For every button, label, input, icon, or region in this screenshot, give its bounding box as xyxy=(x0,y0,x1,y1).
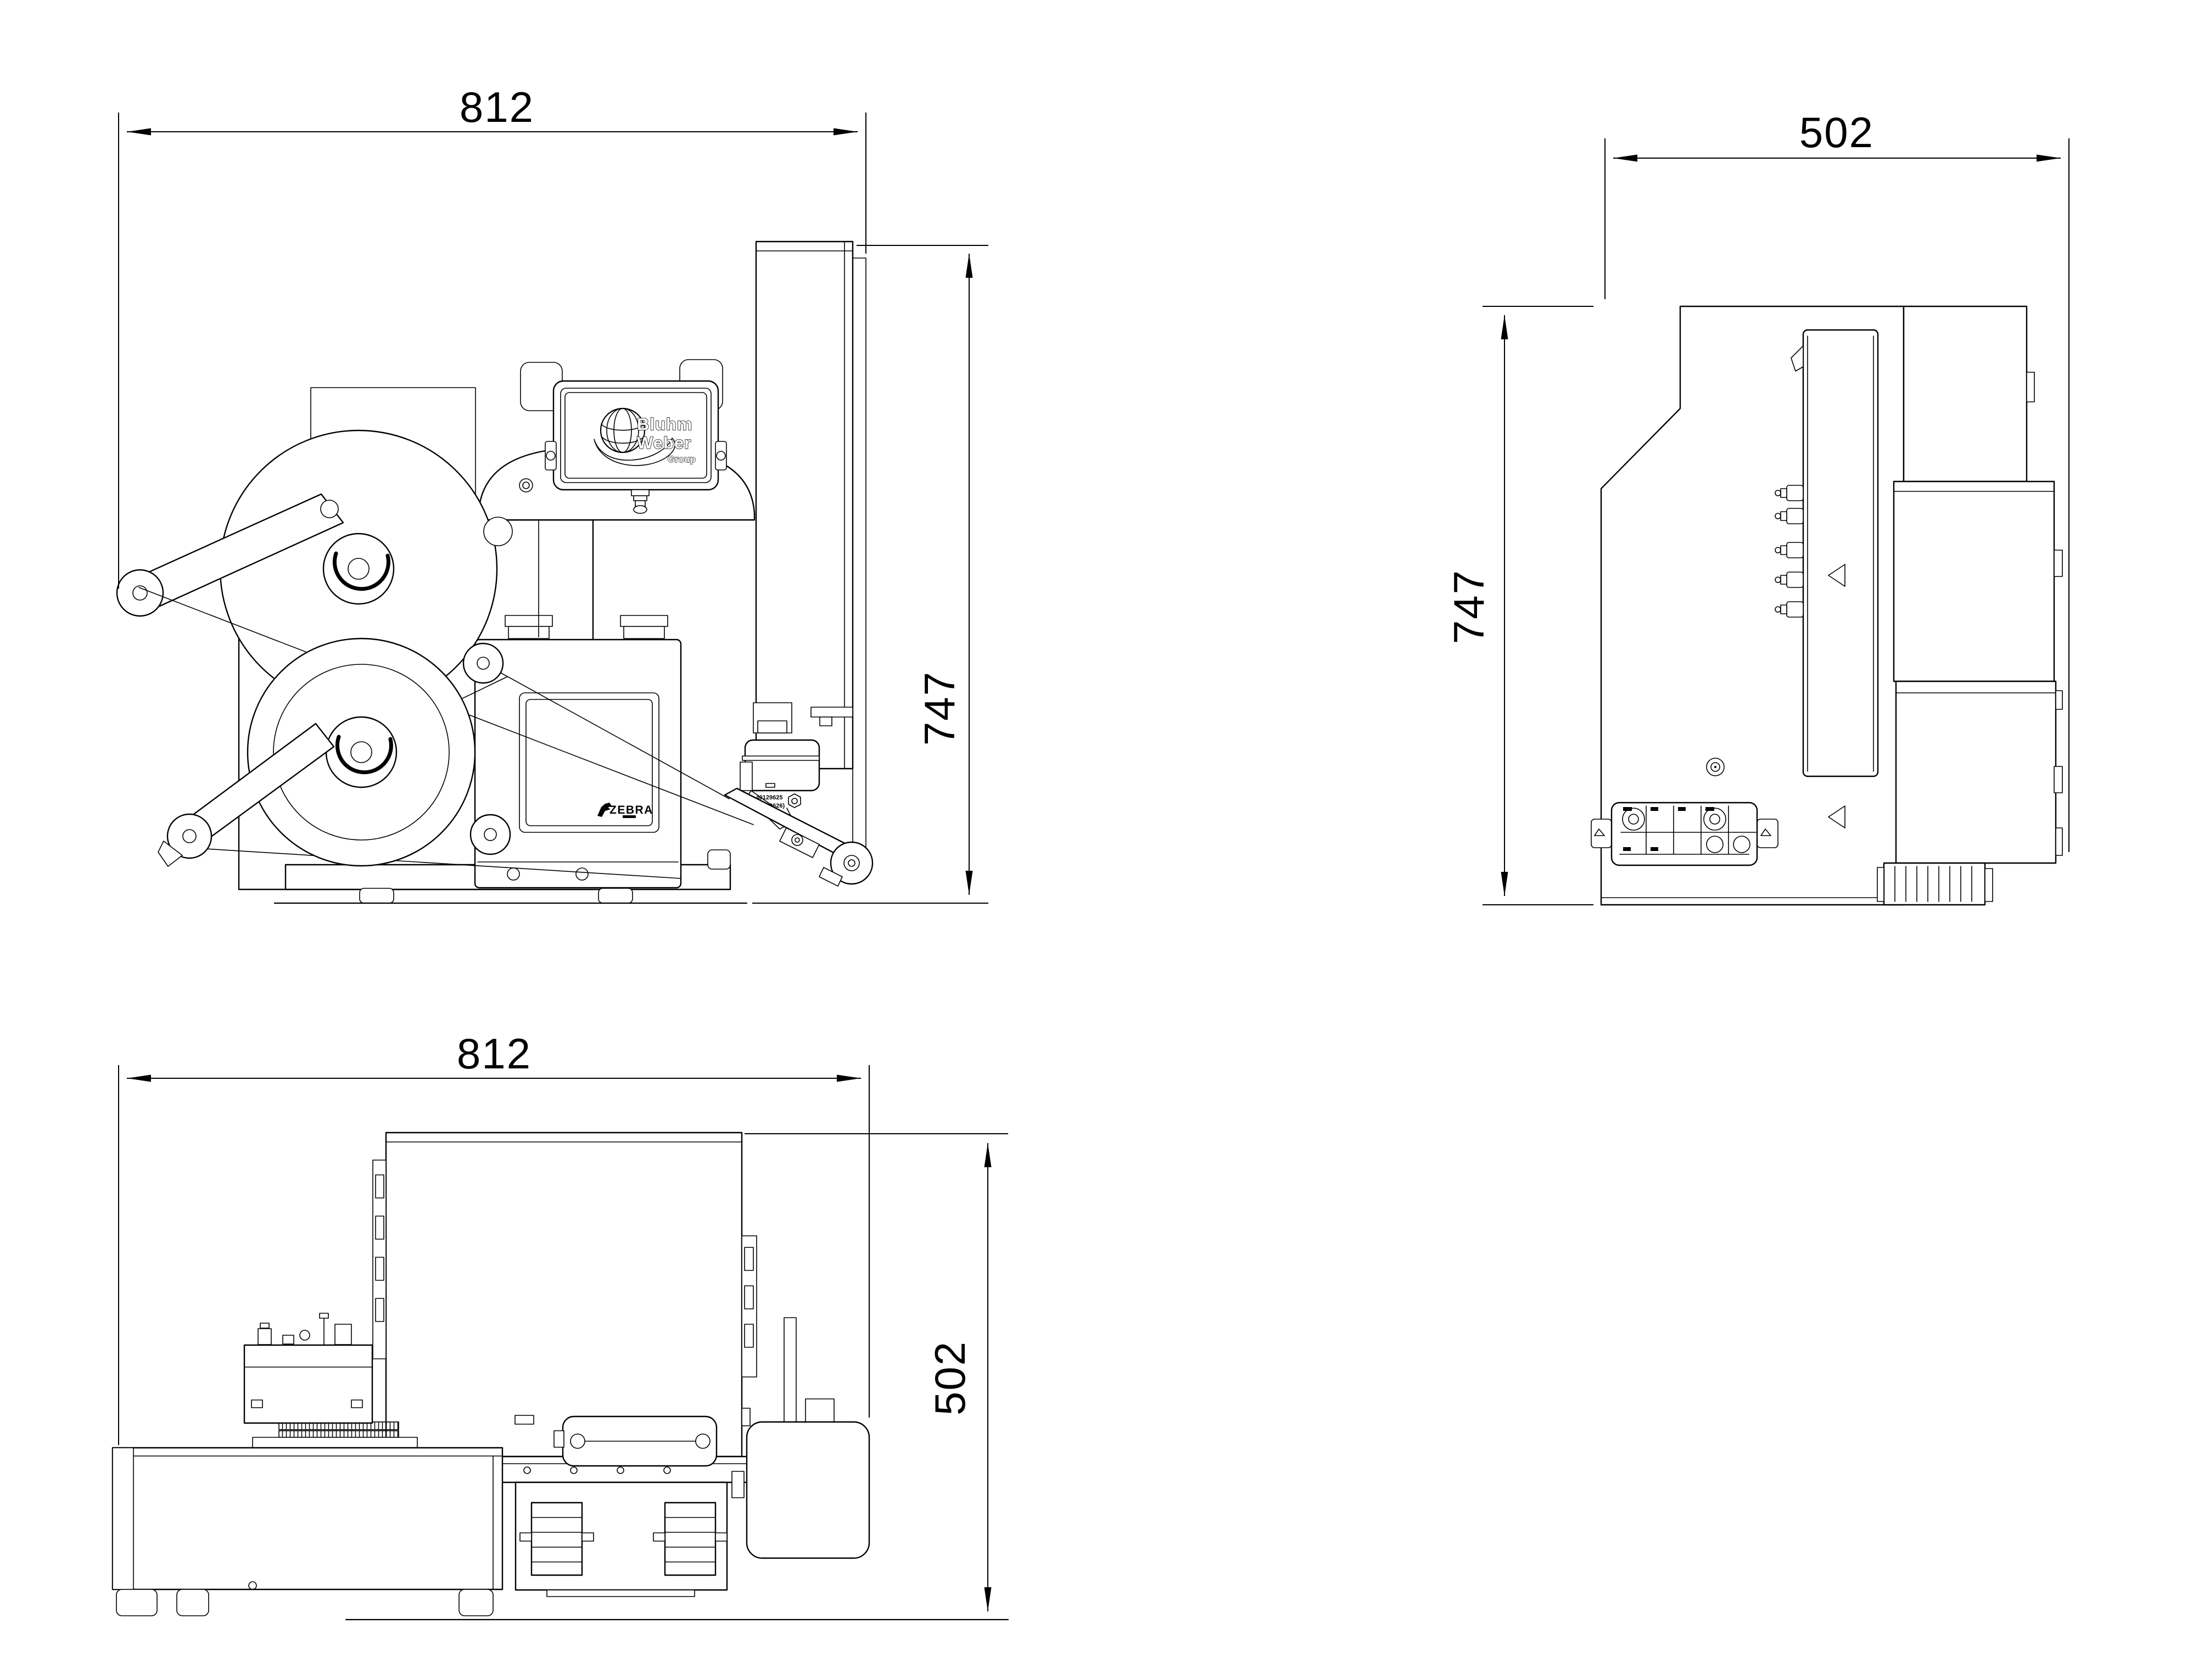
side-tab xyxy=(2054,550,2062,576)
dim-side-width: 502 xyxy=(1799,108,1874,156)
dim-side-height: 747 xyxy=(1445,569,1493,644)
connector-pin xyxy=(1781,489,1787,497)
block-side-tab xyxy=(1757,819,1778,848)
flat-box xyxy=(113,1448,502,1589)
dim-top-width: 812 xyxy=(457,1029,532,1078)
conveyor-base xyxy=(113,1448,502,1616)
fitting-cap xyxy=(320,1313,328,1318)
upper-arm-pivot xyxy=(321,500,338,518)
round-connector-pin xyxy=(1714,766,1716,768)
side-fitting-stub xyxy=(820,717,832,726)
fitting xyxy=(283,1335,294,1344)
guide-roller-hole xyxy=(477,657,489,669)
connector-pin xyxy=(1781,605,1787,614)
side-tab xyxy=(2056,828,2062,855)
side-column-stack xyxy=(1894,306,2062,863)
hmi-frame xyxy=(553,381,718,490)
pneumatic-port[interactable] xyxy=(1733,836,1750,853)
pneumatic-port[interactable] xyxy=(1623,808,1645,830)
applicator-strip xyxy=(784,1318,796,1423)
pneumatic-block xyxy=(1591,803,1778,865)
rewind-gear-pedestal xyxy=(253,1422,417,1448)
valve-detail xyxy=(251,1400,262,1408)
fitting xyxy=(335,1324,351,1345)
ribbed-pad xyxy=(520,1503,594,1575)
hmi-side-bolt-head xyxy=(717,451,725,460)
technical-drawing: 40129625 (40129626) xyxy=(0,0,2187,1680)
ribbed-pad xyxy=(653,1503,727,1575)
pad-tab xyxy=(520,1533,532,1541)
applicator-block xyxy=(732,1471,744,1498)
pneumatic-port[interactable] xyxy=(1704,808,1726,830)
rewind-shaft-hole xyxy=(351,742,372,763)
mid-box xyxy=(1894,481,2054,681)
hmi-side-bolt-head xyxy=(546,451,555,460)
dancer-roller-hub xyxy=(844,855,859,871)
peel-housing xyxy=(745,740,819,791)
dim-front-width: 812 xyxy=(460,83,534,131)
fitting-cap xyxy=(260,1323,269,1328)
side-fitting xyxy=(811,707,853,717)
valve-block-lower xyxy=(758,721,787,733)
connector[interactable] xyxy=(1787,485,1803,501)
unwind-shaft-hole xyxy=(348,558,369,579)
hmi-cable-gland xyxy=(631,490,649,496)
tab xyxy=(745,1286,753,1309)
connector[interactable] xyxy=(1787,572,1803,587)
machine-foot xyxy=(116,1589,157,1616)
peel-tab xyxy=(766,783,775,787)
connector[interactable] xyxy=(1787,508,1803,524)
guide-roller xyxy=(484,517,512,546)
applicator-pad xyxy=(747,1422,869,1558)
plate-bolt xyxy=(519,479,533,492)
pedestal-plate xyxy=(253,1437,417,1448)
connector-pin xyxy=(1781,512,1787,520)
machine-foot xyxy=(599,888,633,903)
block-side-tab xyxy=(1591,819,1612,848)
logo-line2: Weber xyxy=(637,433,691,452)
column-backing-plate xyxy=(853,258,866,848)
grid-end-cap xyxy=(1985,869,1993,901)
valve-unit-body xyxy=(244,1345,372,1423)
pneumatic-port[interactable] xyxy=(1707,836,1723,853)
drawing-sheet: 40129625 (40129626) xyxy=(0,0,2187,1680)
side-tab xyxy=(2027,372,2034,402)
hmi-cable-gland-nut xyxy=(634,506,647,513)
tab xyxy=(376,1175,384,1198)
machine-foot xyxy=(459,1589,493,1616)
connector[interactable] xyxy=(1787,542,1803,558)
tab xyxy=(376,1298,384,1321)
side-tab xyxy=(2056,691,2062,709)
plate-body xyxy=(1803,330,1878,776)
peel-side-block xyxy=(740,762,752,791)
housing-top xyxy=(386,1133,742,1457)
fitting-round xyxy=(300,1330,310,1340)
valve-unit xyxy=(244,1313,372,1423)
engine-screw xyxy=(507,868,519,880)
machine-foot xyxy=(360,888,394,903)
vacuum-grid xyxy=(1877,863,1993,905)
side-view: 502 747 xyxy=(1445,108,2069,905)
applicator-bracket xyxy=(806,1399,834,1422)
connector-pin xyxy=(1781,546,1787,555)
top-machine xyxy=(113,1133,1008,1620)
valve-detail xyxy=(351,1400,362,1408)
dim-top-depth: 502 xyxy=(926,1341,974,1415)
web-bracket xyxy=(620,615,668,626)
web-bracket xyxy=(505,615,552,626)
pad-body xyxy=(665,1503,715,1575)
front-view: 40129625 (40129626) xyxy=(117,83,988,903)
gear-ring xyxy=(279,1431,399,1437)
tab xyxy=(376,1257,384,1280)
engine-screw xyxy=(576,868,588,880)
tab xyxy=(376,1216,384,1239)
flat-box-end-cap xyxy=(113,1448,133,1589)
tab xyxy=(745,1247,753,1270)
web-bracket xyxy=(624,626,664,639)
connector-pin xyxy=(1781,575,1787,584)
cylinder-end xyxy=(570,1434,585,1448)
step-bracket xyxy=(515,1415,534,1424)
pad-tab xyxy=(653,1533,665,1541)
hmi-cable-gland xyxy=(634,496,647,501)
lower-box xyxy=(1896,681,2056,863)
connector[interactable] xyxy=(1787,602,1803,617)
guide-roller-hole xyxy=(484,828,496,841)
logo-line3: Group xyxy=(668,454,696,464)
machine-foot xyxy=(177,1589,209,1616)
zebra-model-text xyxy=(623,815,636,818)
front-machine: 40129625 (40129626) xyxy=(117,242,872,903)
pad-tab xyxy=(715,1533,727,1541)
web-bracket xyxy=(508,626,549,639)
grid-end-cap xyxy=(1877,867,1884,901)
cylinder-end xyxy=(696,1434,710,1448)
upper-column xyxy=(1904,306,2027,481)
dim-front-height: 747 xyxy=(915,671,964,746)
top-view: 812 502 xyxy=(113,1029,1008,1620)
side-machine xyxy=(1591,306,2062,905)
column-body xyxy=(756,242,853,769)
slider-screw xyxy=(792,835,803,845)
cylinder-bolt xyxy=(554,1431,564,1447)
tab xyxy=(742,1408,750,1426)
lower-arm-roller-hole xyxy=(183,830,196,843)
fitting xyxy=(258,1329,271,1345)
side-tab xyxy=(2054,766,2062,793)
hex-bolt xyxy=(788,794,801,808)
logo-line1: Bluhm xyxy=(637,415,692,434)
peel-bar xyxy=(742,756,819,760)
lower-box-lip xyxy=(547,1590,695,1597)
base-right-block xyxy=(708,850,730,869)
pad-tab xyxy=(582,1533,594,1541)
pad-body xyxy=(532,1503,582,1575)
vacuum-grid-body xyxy=(1884,863,1985,905)
zebra-brand-text: ZEBRA xyxy=(609,804,653,816)
tab xyxy=(745,1324,753,1347)
